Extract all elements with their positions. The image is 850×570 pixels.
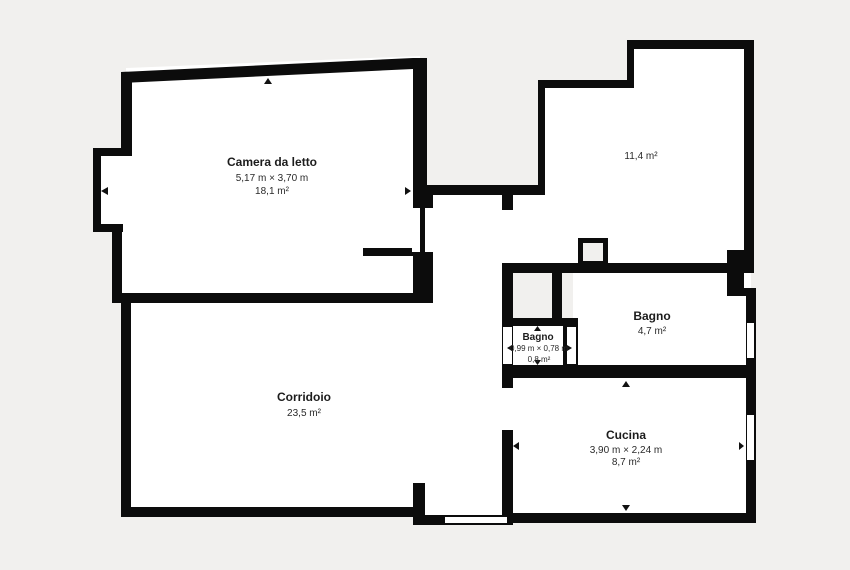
- label-locale-11: 11,4 m²: [624, 151, 658, 162]
- wall-shaft-right: [552, 263, 562, 325]
- room-area-camera-da-letto: 18,1 m²: [255, 186, 290, 197]
- wall-bedroom-left-lower: [112, 224, 122, 303]
- floor-plan: Camera da letto 5,17 m × 3,70 m 18,1 m² …: [0, 0, 850, 570]
- wall-locale11-left: [538, 80, 545, 195]
- wall-locale11-right-outer: [744, 40, 754, 273]
- wall-bagno-top-right: [727, 288, 756, 296]
- room-name-cucina: Cucina: [606, 428, 646, 442]
- wall-hallway-east-upper: [502, 185, 513, 210]
- wall-bedroom-hallway-lower: [413, 252, 433, 293]
- shaft: [513, 273, 552, 318]
- room-dims-camera-da-letto: 5,17 m × 3,70 m: [236, 173, 309, 184]
- door-bagno-piccolo-east: [567, 327, 576, 364]
- wall-corridor-bottom: [121, 507, 417, 517]
- wall-bagno-piccolo-bottom: [502, 365, 565, 378]
- wall-bedroom-right-upper: [413, 58, 427, 195]
- door-hallway-locale11: [501, 210, 514, 263]
- room-name-camera-da-letto: Camera da letto: [227, 155, 317, 169]
- wall-bedroom-stub: [363, 248, 413, 256]
- door-bedroom-leaf: [420, 206, 425, 254]
- wall-locale11-bottom: [502, 263, 754, 273]
- door-entrance: [445, 517, 507, 523]
- room-area-locale-11: 11,4 m²: [624, 151, 658, 162]
- floor-plan-canvas: Camera da letto 5,17 m × 3,70 m 18,1 m² …: [0, 0, 850, 570]
- wall-hallway-east-lower: [502, 430, 513, 517]
- room-area-bagno: 4,7 m²: [638, 326, 667, 337]
- wall-center-horizontal: [413, 185, 545, 195]
- wall-bagno-piccolo-top: [502, 318, 565, 326]
- wall-locale11-step: [538, 80, 634, 88]
- room-name-bagno-piccolo: Bagno: [522, 332, 553, 343]
- wall-bedroom-left-upper: [121, 72, 132, 156]
- room-name-corridoio: Corridoio: [277, 390, 331, 404]
- pillar-inner: [583, 243, 603, 261]
- wall-niche-left: [93, 148, 101, 232]
- window-cucina: [747, 415, 754, 460]
- room-name-bagno: Bagno: [633, 309, 670, 323]
- door-hallway-cucina: [501, 388, 514, 430]
- room-area-corridoio: 23,5 m²: [287, 408, 322, 419]
- room-dims-cucina: 3,90 m × 2,24 m: [590, 445, 663, 456]
- wall-bedroom-bottom: [112, 293, 433, 303]
- room-dims-bagno-piccolo: 0,99 m × 0,78 m: [510, 344, 568, 353]
- wall-bagno-bottom: [563, 365, 756, 378]
- room-area-cucina: 8,7 m²: [612, 457, 641, 468]
- wall-corridor-left: [121, 303, 131, 508]
- wall-locale11-top: [627, 40, 754, 49]
- window-bagno: [747, 323, 754, 358]
- wall-cucina-bottom: [507, 513, 756, 523]
- room-area-bagno-piccolo: 0,8 m²: [528, 355, 551, 364]
